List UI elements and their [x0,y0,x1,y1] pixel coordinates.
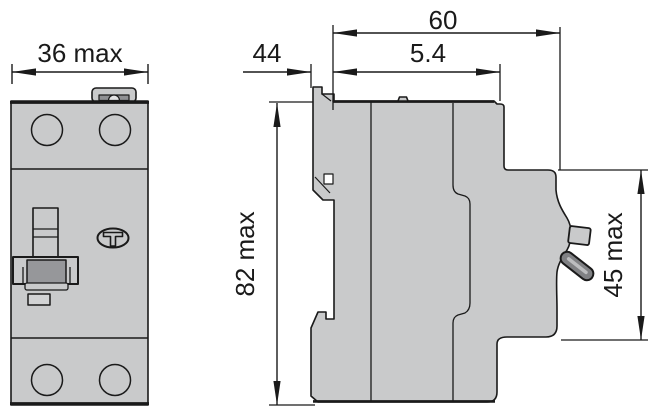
toggle-handle [27,260,66,286]
dimension-front-height-label: 45 max [598,212,628,297]
arrow-left [333,29,357,36]
arrow-right [536,29,560,36]
tab-notch [109,95,120,101]
arrow-down [273,381,280,405]
arrow-down [637,316,644,340]
test-button [98,229,129,248]
din-tab [92,88,136,102]
arrow-left [12,68,36,75]
dimension-rail-depth-label: 44 [253,38,282,68]
dimension-rail-and-clip: 44 5.4 [243,38,500,101]
side-test-button [568,226,591,245]
front-view: 36 max [10,38,149,405]
side-view: 60 44 5.4 82 max [230,5,648,405]
terminal-screw-top-right [100,115,131,146]
arrow-left [333,68,357,75]
front-body [11,101,148,405]
terminal-screw-top-left [32,115,63,146]
terminal-screw-bottom-left [32,365,63,396]
arrow-right [124,68,148,75]
dimension-depth-total-label: 60 [429,5,458,35]
drawing-svg: 36 max [0,0,651,420]
dimension-width: 36 max [12,38,148,84]
dimension-height: 82 max [230,102,315,405]
side-body [311,87,571,402]
arrow-right [476,68,500,75]
arrow-right [287,68,311,75]
dimension-drawing: 36 max [0,0,651,420]
terminal-screw-bottom-right [100,365,131,396]
side-toggle-lever [558,249,596,283]
claw-notch [324,174,333,184]
dimension-height-label: 82 max [230,211,260,296]
dimension-width-label: 36 max [37,38,122,68]
arrow-up [637,170,644,194]
arrow-up [273,103,280,127]
indicator-window [28,294,50,305]
dimension-clip-depth-label: 5.4 [410,38,446,68]
